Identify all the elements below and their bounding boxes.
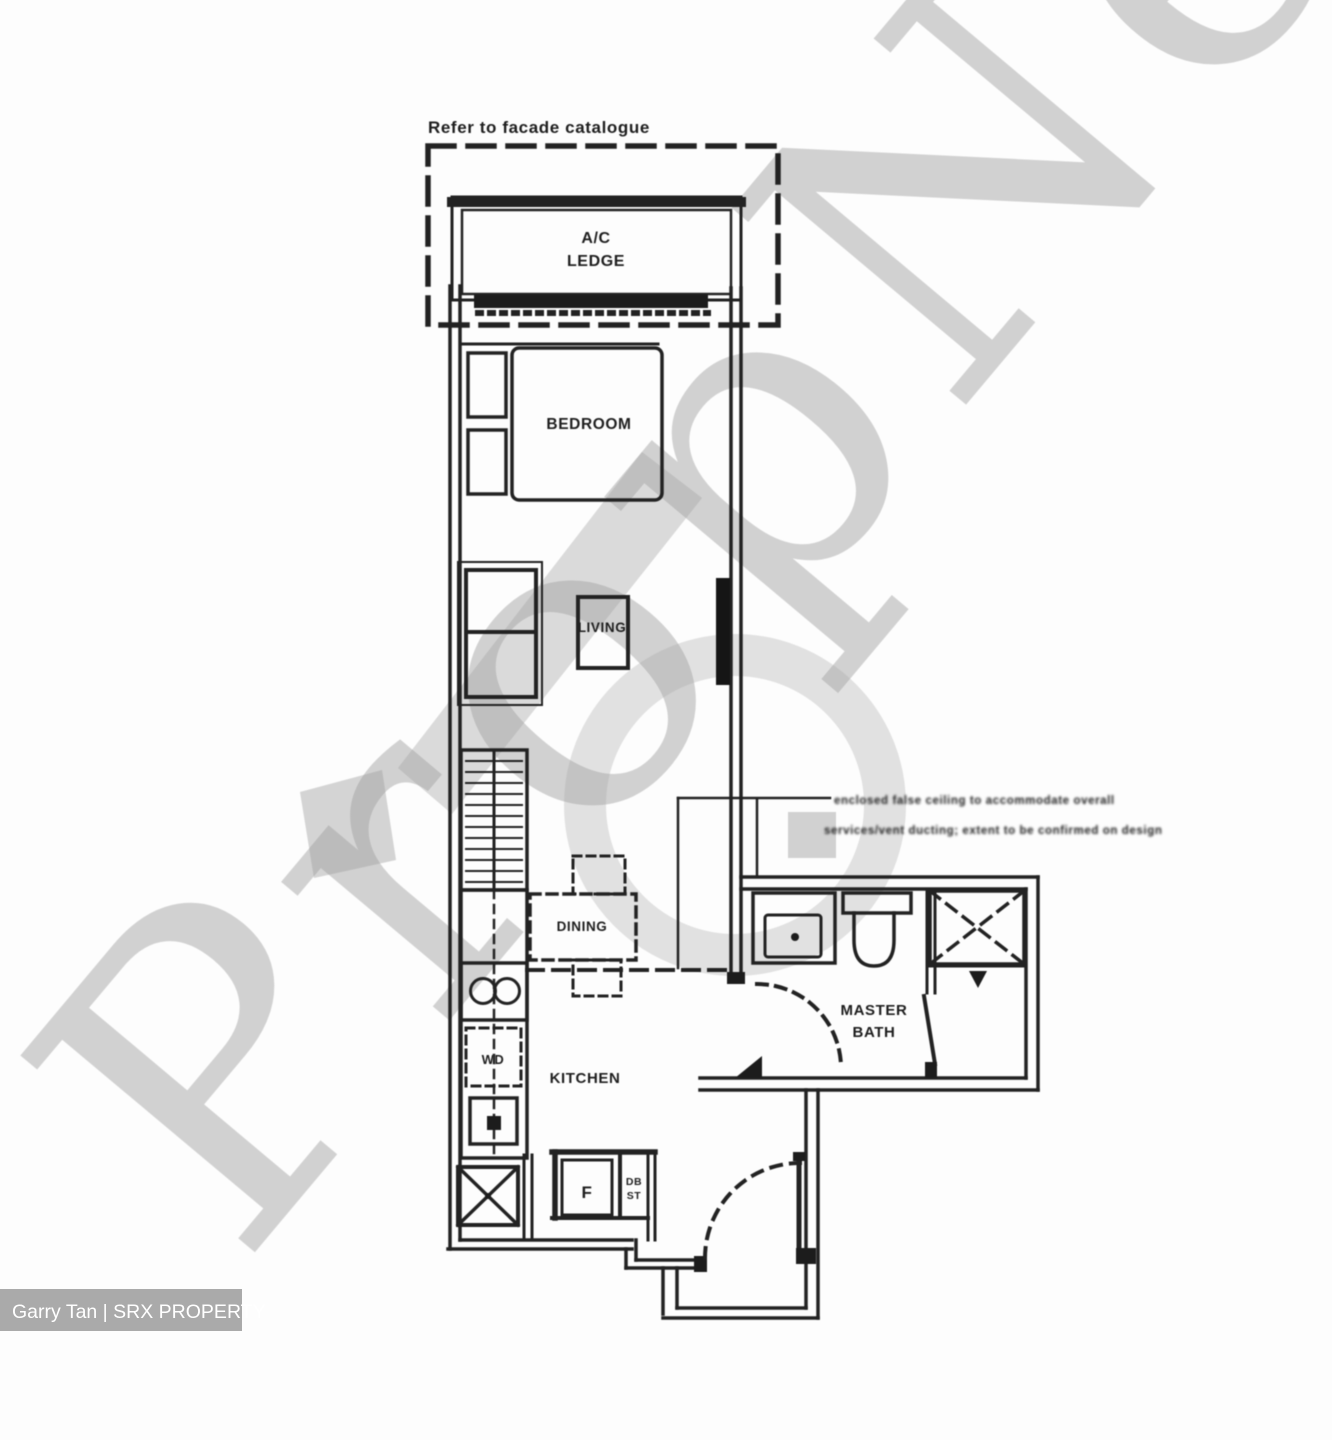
master-bath-label-2: BATH (853, 1024, 896, 1041)
kitchen-shaft (458, 1155, 532, 1240)
fridge-label: F (582, 1183, 593, 1202)
st-label: ST (627, 1190, 642, 1202)
ac-ledge-label-1: A/C (581, 230, 610, 247)
credit-text: Garry Tan | SRX PROPERTY (12, 1301, 266, 1323)
master-bath-fixtures (735, 889, 1024, 1078)
bath-door-arc (757, 984, 841, 1068)
annotation-line-1: enclosed false ceiling to accommodate ov… (834, 795, 1115, 807)
kitchen-label: KITCHEN (550, 1070, 621, 1087)
window-band (474, 295, 708, 313)
credit-bar: Garry Tan | SRX PROPERTY (0, 1289, 266, 1331)
entry-door-arc (705, 1163, 800, 1258)
floorplan-svg: PropNex (0, 0, 1332, 1440)
bath-shaft (930, 891, 1024, 964)
bedroom-label: BEDROOM (546, 416, 631, 433)
sliding-door-panel (716, 578, 730, 685)
entry-door (705, 1152, 816, 1264)
master-bath-label-1: MASTER (841, 1002, 908, 1019)
ac-ledge-label-2: LEDGE (567, 253, 625, 270)
facade-note: Refer to facade catalogue (428, 118, 650, 137)
washer-dryer-label: WD (482, 1052, 505, 1067)
annotation-line-2: services/vent ducting; extent to be conf… (824, 825, 1162, 837)
dining-label: DINING (557, 919, 608, 934)
living-label: LIVING (578, 620, 627, 635)
shower-head-icon (969, 971, 987, 988)
floorplan-image: PropNex (0, 0, 1332, 1440)
db-label: DB (626, 1176, 642, 1188)
